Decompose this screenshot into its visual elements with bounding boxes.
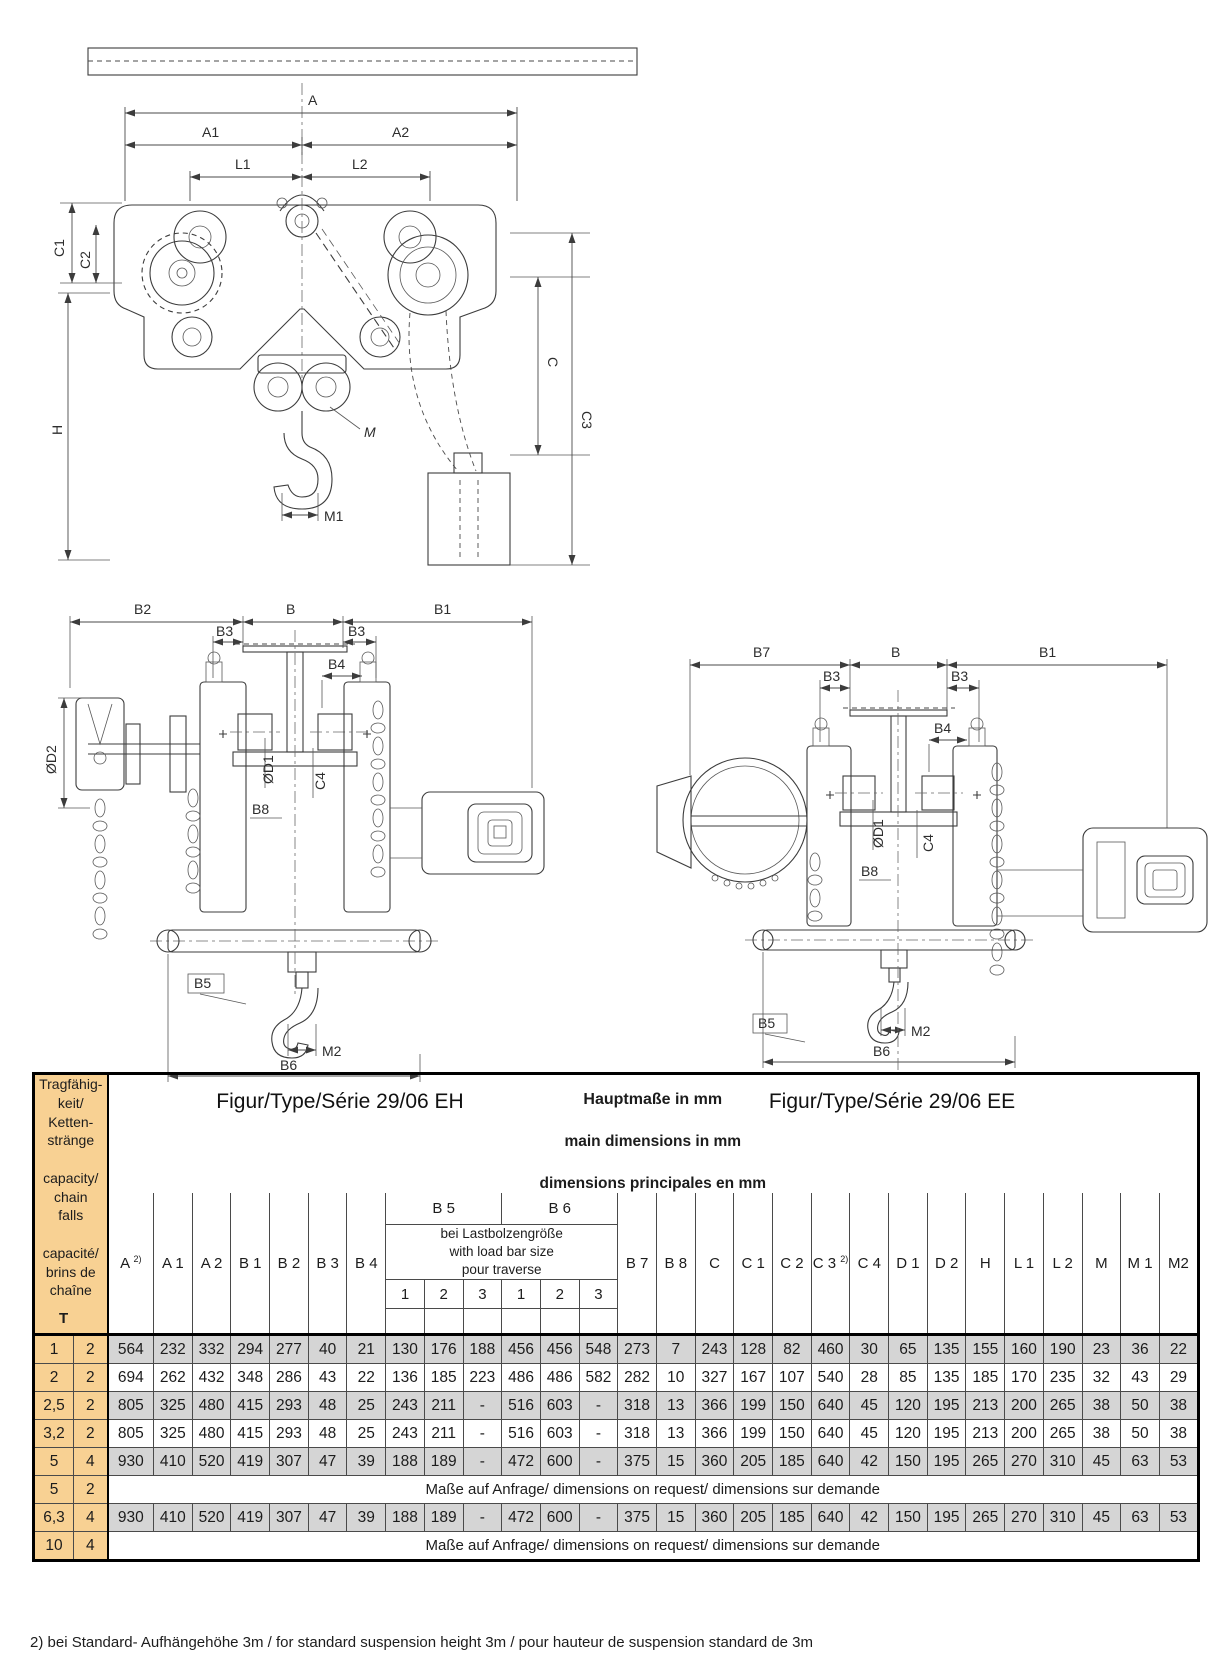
dimension-value-cell: 265 (1043, 1420, 1082, 1448)
dimension-value-cell: 243 (386, 1392, 425, 1420)
hand-chain (93, 799, 107, 939)
dimension-value-cell: 28 (850, 1364, 889, 1392)
dim-label-c4: C4 (312, 772, 328, 790)
dimension-value-cell: 582 (579, 1364, 618, 1392)
dimension-value-cell: 130 (386, 1335, 425, 1364)
capacity-cell: 5 (34, 1448, 74, 1476)
dimension-value-cell: 472 (502, 1448, 541, 1476)
dim-label-a1: A1 (202, 124, 219, 140)
header-spacer-cell (540, 1309, 579, 1335)
column-header: M (1082, 1193, 1121, 1335)
dim-label-b3-right: B3 (951, 668, 968, 684)
dimension-value-cell: 45 (850, 1392, 889, 1420)
dimension-value-cell: 13 (656, 1420, 695, 1448)
dimension-value-cell: 10 (656, 1364, 695, 1392)
dimension-value-cell: 185 (773, 1448, 812, 1476)
dimension-value-cell: 38 (1082, 1420, 1121, 1448)
dimension-value-cell: 640 (811, 1448, 850, 1476)
load-bar-group-description: bei Lastbolzengröße with load bar size p… (386, 1225, 618, 1280)
capacity-cell: 5 (34, 1476, 74, 1504)
dimension-value-cell: 375 (618, 1448, 657, 1476)
column-header: H (966, 1193, 1005, 1335)
load-chain (186, 701, 385, 893)
dimension-value-cell: 29 (1159, 1364, 1198, 1392)
dim-label-b3-left: B3 (823, 668, 840, 684)
column-header: B 2 (270, 1193, 309, 1335)
dim-label-b7: B7 (753, 644, 770, 660)
dimension-value-cell: 65 (889, 1335, 928, 1364)
dimension-value-cell: 45 (1082, 1448, 1121, 1476)
dim-label-c1: C1 (51, 239, 67, 257)
header-spacer-cell (463, 1309, 502, 1335)
dimension-value-cell: 603 (540, 1392, 579, 1420)
dim-label-m1: M1 (324, 508, 344, 524)
dimensions-on-request-cell: Maße auf Anfrage/ dimensions on request/… (108, 1476, 1199, 1504)
dimension-value-cell: 520 (192, 1504, 231, 1532)
dimension-value-cell: - (463, 1392, 502, 1420)
dimension-value-cell: 195 (927, 1392, 966, 1420)
dimension-value-cell: 419 (231, 1504, 270, 1532)
dimension-value-cell: 360 (695, 1448, 734, 1476)
dimension-value-cell: 189 (424, 1504, 463, 1532)
dimension-value-cell: - (463, 1420, 502, 1448)
dimension-value-cell: 307 (270, 1448, 309, 1476)
dimension-value-cell: 265 (1043, 1392, 1082, 1420)
dimension-value-cell: 85 (889, 1364, 928, 1392)
dimension-value-cell: 640 (811, 1504, 850, 1532)
load-bar-size-subcolumn: 1 (386, 1280, 425, 1309)
dim-label-a2: A2 (392, 124, 409, 140)
dimension-value-cell: 120 (889, 1392, 928, 1420)
dimension-value-cell: 43 (1121, 1364, 1160, 1392)
column-header: C (695, 1193, 734, 1335)
header-spacer-cell (579, 1309, 618, 1335)
dimension-value-cell: 325 (154, 1420, 193, 1448)
dimension-value-cell: 155 (966, 1335, 1005, 1364)
dimension-value-cell: 930 (108, 1504, 154, 1532)
table-row: 104Maße auf Anfrage/ dimensions on reque… (34, 1532, 1199, 1561)
dimension-value-cell: 270 (1005, 1504, 1044, 1532)
table-header: Tragfähig- keit/ Ketten- stränge capacit… (34, 1074, 1199, 1335)
dimension-value-cell: 150 (773, 1392, 812, 1420)
dimension-value-cell: 211 (424, 1392, 463, 1420)
dim-label-c2: C2 (77, 251, 93, 269)
dimension-value-cell: 188 (463, 1335, 502, 1364)
table-row: 3,228053254804152934825243211-516603-318… (34, 1420, 1199, 1448)
dimension-value-cell: 486 (502, 1364, 541, 1392)
dim-label-b3-right: B3 (348, 623, 365, 639)
dimension-value-cell: 205 (734, 1504, 773, 1532)
dimension-value-cell: 48 (308, 1420, 347, 1448)
load-bar-size-subcolumn: 1 (502, 1280, 541, 1309)
dimension-value-cell: 21 (347, 1335, 386, 1364)
dim-label-c4: C4 (920, 834, 936, 852)
dimension-value-cell: 199 (734, 1420, 773, 1448)
table-body: 1256423233229427740211301761884564565482… (34, 1335, 1199, 1561)
drawing-trolley-eh: B2 B B1 B3 B3 ØD1 C4 B4 B8 ØD2 (30, 558, 550, 1090)
dim-label-b1: B1 (1039, 644, 1056, 660)
dimension-value-cell: 47 (308, 1504, 347, 1532)
load-bar-size-subcolumn: 3 (463, 1280, 502, 1309)
dim-label-b2: B2 (134, 601, 151, 617)
dimension-value-cell: 480 (192, 1420, 231, 1448)
dimension-value-cell: 150 (889, 1504, 928, 1532)
dimension-value-cell: 170 (1005, 1364, 1044, 1392)
dimension-value-cell: 415 (231, 1392, 270, 1420)
dimension-value-cell: 185 (966, 1364, 1005, 1392)
column-header: A 2) (108, 1193, 154, 1335)
dimension-value-cell: 516 (502, 1420, 541, 1448)
dimension-value-cell: 195 (927, 1420, 966, 1448)
column-header: D 1 (889, 1193, 928, 1335)
column-header: C 4 (850, 1193, 889, 1335)
dimension-value-cell: 472 (502, 1504, 541, 1532)
dimension-value-cell: 243 (695, 1335, 734, 1364)
dimension-value-cell: 38 (1159, 1420, 1198, 1448)
group-header-b5: B 5 (386, 1193, 502, 1225)
dimension-value-cell: - (463, 1504, 502, 1532)
dimension-value-cell: 310 (1043, 1448, 1082, 1476)
chain-falls-cell: 4 (74, 1504, 108, 1532)
capacity-header-cell: Tragfähig- keit/ Ketten- stränge capacit… (34, 1074, 108, 1335)
dimension-value-cell: 30 (850, 1335, 889, 1364)
column-header: L 2 (1043, 1193, 1082, 1335)
dimension-value-cell: 150 (889, 1448, 928, 1476)
column-header: A 2 (192, 1193, 231, 1335)
dimension-value-cell: 47 (308, 1448, 347, 1476)
dimension-value-cell: 199 (734, 1392, 773, 1420)
dimension-value-cell: 42 (850, 1504, 889, 1532)
capacity-header-text: Tragfähig- keit/ Ketten- stränge capacit… (35, 1075, 107, 1300)
dimension-value-cell: 540 (811, 1364, 850, 1392)
dim-label-b: B (286, 601, 295, 617)
dimension-value-cell: 23 (1082, 1335, 1121, 1364)
table-row: 2,528053254804152934825243211-516603-318… (34, 1392, 1199, 1420)
dimension-value-cell: 45 (850, 1420, 889, 1448)
chain-falls-cell: 2 (74, 1392, 108, 1420)
dimension-value-cell: 39 (347, 1448, 386, 1476)
table-row: 1256423233229427740211301761884564565482… (34, 1335, 1199, 1364)
dim-label-a: A (308, 92, 318, 108)
dimension-value-cell: 50 (1121, 1392, 1160, 1420)
dimension-value-cell: - (579, 1420, 618, 1448)
dimension-value-cell: 286 (270, 1364, 309, 1392)
dim-label-b6: B6 (280, 1057, 297, 1073)
dim-label-b6: B6 (873, 1043, 890, 1059)
dimension-value-cell: 63 (1121, 1504, 1160, 1532)
header-spacer-cell (424, 1309, 463, 1335)
dimension-value-cell: 318 (618, 1420, 657, 1448)
dimension-value-cell: 150 (773, 1420, 812, 1448)
dimension-value-cell: 190 (1043, 1335, 1082, 1364)
dimension-value-cell: 348 (231, 1364, 270, 1392)
dimension-value-cell: 40 (308, 1335, 347, 1364)
dimension-value-cell: 160 (1005, 1335, 1044, 1364)
chain-falls-cell: 4 (74, 1532, 108, 1561)
dimension-value-cell: 15 (656, 1504, 695, 1532)
column-header: L 1 (1005, 1193, 1044, 1335)
dimension-value-cell: 211 (424, 1420, 463, 1448)
dimension-value-cell: 694 (108, 1364, 154, 1392)
dimension-value-cell: 50 (1121, 1420, 1160, 1448)
dim-label-b3-left: B3 (216, 623, 233, 639)
dim-label-b4: B4 (934, 720, 951, 736)
table-title-fr: dimensions principales en mm (109, 1175, 1197, 1193)
dimension-value-cell: 243 (386, 1420, 425, 1448)
dimension-value-cell: 603 (540, 1420, 579, 1448)
dimension-value-cell: 486 (540, 1364, 579, 1392)
dimension-value-cell: 235 (1043, 1364, 1082, 1392)
dim-label-b: B (891, 644, 900, 660)
column-header: A 1 (154, 1193, 193, 1335)
dimension-value-cell: 22 (347, 1364, 386, 1392)
dimension-value-cell: 600 (540, 1448, 579, 1476)
dimension-value-cell: 13 (656, 1392, 695, 1420)
dim-label-c: C (545, 357, 561, 367)
column-header: B 3 (308, 1193, 347, 1335)
dimension-value-cell: 460 (811, 1335, 850, 1364)
dimension-value-cell: 294 (231, 1335, 270, 1364)
dimension-value-cell: 640 (811, 1392, 850, 1420)
drawing-trolley-ee: B7 B B1 B3 B3 ØD1 C4 B4 B8 (645, 630, 1215, 1100)
dimension-value-cell: 45 (1082, 1504, 1121, 1532)
dimension-value-cell: 32 (1082, 1364, 1121, 1392)
capacity-cell: 6,3 (34, 1504, 74, 1532)
dim-label-l2: L2 (352, 156, 368, 172)
column-header: C 1 (734, 1193, 773, 1335)
capacity-unit-label: T (35, 1300, 107, 1333)
dimension-value-cell: 39 (347, 1504, 386, 1532)
dimension-value-cell: 293 (270, 1420, 309, 1448)
column-header: D 2 (927, 1193, 966, 1335)
header-spacer-cell (502, 1309, 541, 1335)
dimension-value-cell: 107 (773, 1364, 812, 1392)
dimension-value-cell: 63 (1121, 1448, 1160, 1476)
column-header: B 7 (618, 1193, 657, 1335)
table-row: 549304105204193074739188189-472600-37515… (34, 1448, 1199, 1476)
dimension-value-cell: 120 (889, 1420, 928, 1448)
dim-label-b8: B8 (252, 801, 269, 817)
dimension-value-cell: 205 (734, 1448, 773, 1476)
dimensions-on-request-cell: Maße auf Anfrage/ dimensions on request/… (108, 1532, 1199, 1561)
dimension-value-cell: 223 (463, 1364, 502, 1392)
dim-label-b1: B1 (434, 601, 451, 617)
chain-falls-cell: 2 (74, 1476, 108, 1504)
dimension-value-cell: 262 (154, 1364, 193, 1392)
capacity-cell: 2 (34, 1364, 74, 1392)
dimension-value-cell: 310 (1043, 1504, 1082, 1532)
dimension-value-cell: 185 (424, 1364, 463, 1392)
dim-label-m: M (364, 424, 376, 440)
column-header: C 3 2) (811, 1193, 850, 1335)
dim-label-d1: ØD1 (260, 755, 276, 784)
dimension-value-cell: 548 (579, 1335, 618, 1364)
dim-label-b5: B5 (194, 975, 211, 991)
column-header: M2 (1159, 1193, 1198, 1335)
dimension-value-cell: 318 (618, 1392, 657, 1420)
dimension-value-cell: 195 (927, 1448, 966, 1476)
dimension-value-cell: 270 (1005, 1448, 1044, 1476)
dimension-value-cell: 53 (1159, 1448, 1198, 1476)
dimension-value-cell: 366 (695, 1392, 734, 1420)
dimension-value-cell: 375 (618, 1504, 657, 1532)
load-bar-size-subcolumn: 2 (424, 1280, 463, 1309)
dimension-value-cell: 265 (966, 1448, 1005, 1476)
dimension-value-cell: 38 (1082, 1392, 1121, 1420)
drawing-hoist-front-view: A A1 A2 L1 L2 C1 C2 H C C3 M M1 (30, 25, 650, 570)
dimension-value-cell: 25 (347, 1392, 386, 1420)
dim-label-b5: B5 (758, 1015, 775, 1031)
dimension-value-cell: 135 (927, 1335, 966, 1364)
dimension-value-cell: 327 (695, 1364, 734, 1392)
dim-label-d1: ØD1 (870, 819, 886, 848)
table-row: 2269426243234828643221361852234864865822… (34, 1364, 1199, 1392)
dimension-value-cell: 200 (1005, 1392, 1044, 1420)
chain-falls-cell: 4 (74, 1448, 108, 1476)
load-bar-size-subcolumn: 2 (540, 1280, 579, 1309)
dimension-value-cell: 195 (927, 1504, 966, 1532)
dimension-value-cell: 189 (424, 1448, 463, 1476)
dim-label-h: H (49, 425, 65, 435)
group-header-b6: B 6 (502, 1193, 618, 1225)
capacity-cell: 1 (34, 1335, 74, 1364)
dimension-value-cell: 167 (734, 1364, 773, 1392)
dimension-value-cell: 332 (192, 1335, 231, 1364)
dimension-value-cell: 410 (154, 1448, 193, 1476)
dimension-value-cell: 7 (656, 1335, 695, 1364)
dimension-value-cell: 36 (1121, 1335, 1160, 1364)
dimension-value-cell: 185 (773, 1504, 812, 1532)
table-title-cell: Hauptmaße in mm main dimensions in mm di… (108, 1074, 1199, 1194)
capacity-cell: 3,2 (34, 1420, 74, 1448)
dimension-value-cell: 188 (386, 1504, 425, 1532)
chain-falls-cell: 2 (74, 1420, 108, 1448)
footnote: 2) bei Standard- Aufhängehöhe 3m / for s… (30, 1634, 813, 1651)
load-bar-size-subcolumn: 3 (579, 1280, 618, 1309)
dimension-value-cell: 366 (695, 1420, 734, 1448)
dimension-value-cell: 325 (154, 1392, 193, 1420)
table-row: 6,349304105204193074739188189-472600-375… (34, 1504, 1199, 1532)
dimension-table: Tragfähig- keit/ Ketten- stränge capacit… (32, 1072, 1200, 1562)
dimension-value-cell: 415 (231, 1420, 270, 1448)
dimension-value-cell: 277 (270, 1335, 309, 1364)
dimension-value-cell: 516 (502, 1392, 541, 1420)
column-header: B 8 (656, 1193, 695, 1335)
capacity-cell: 2,5 (34, 1392, 74, 1420)
dimension-value-cell: - (579, 1504, 618, 1532)
dimension-value-cell: 38 (1159, 1392, 1198, 1420)
dimension-value-cell: 293 (270, 1392, 309, 1420)
dimension-value-cell: - (579, 1448, 618, 1476)
dimension-value-cell: 42 (850, 1448, 889, 1476)
dimension-value-cell: 188 (386, 1448, 425, 1476)
dimension-value-cell: - (463, 1448, 502, 1476)
dimension-value-cell: 25 (347, 1420, 386, 1448)
table-title-de: Hauptmaße in mm (109, 1091, 1197, 1109)
dimension-value-cell: 930 (108, 1448, 154, 1476)
dimension-value-cell: 520 (192, 1448, 231, 1476)
dim-label-l1: L1 (235, 156, 251, 172)
dimension-value-cell: 360 (695, 1504, 734, 1532)
dimension-value-cell: 480 (192, 1392, 231, 1420)
table-row: 52Maße auf Anfrage/ dimensions on reques… (34, 1476, 1199, 1504)
table-title-en: main dimensions in mm (109, 1133, 1197, 1151)
dimension-value-cell: 419 (231, 1448, 270, 1476)
dim-label-d2: ØD2 (43, 745, 59, 774)
dimension-value-cell: 805 (108, 1420, 154, 1448)
dimension-value-cell: 410 (154, 1504, 193, 1532)
capacity-cell: 10 (34, 1532, 74, 1561)
dimension-value-cell: 600 (540, 1504, 579, 1532)
dimension-value-cell: 176 (424, 1335, 463, 1364)
column-header: C 2 (773, 1193, 812, 1335)
dimension-value-cell: 53 (1159, 1504, 1198, 1532)
dimension-value-cell: 456 (540, 1335, 579, 1364)
dimension-value-cell: 432 (192, 1364, 231, 1392)
dimension-value-cell: 213 (966, 1420, 1005, 1448)
dimension-value-cell: 48 (308, 1392, 347, 1420)
column-header: B 1 (231, 1193, 270, 1335)
dimension-value-cell: 15 (656, 1448, 695, 1476)
dim-label-b8: B8 (861, 863, 878, 879)
dimension-value-cell: 282 (618, 1364, 657, 1392)
column-header: M 1 (1121, 1193, 1160, 1335)
dimension-value-cell: 805 (108, 1392, 154, 1420)
dimension-value-cell: 273 (618, 1335, 657, 1364)
dimension-value-cell: 136 (386, 1364, 425, 1392)
dimension-value-cell: 564 (108, 1335, 154, 1364)
dim-label-b4: B4 (328, 656, 345, 672)
dimension-value-cell: 456 (502, 1335, 541, 1364)
header-spacer-cell (386, 1309, 425, 1335)
dimension-value-cell: 128 (734, 1335, 773, 1364)
dimension-value-cell: 43 (308, 1364, 347, 1392)
dimension-value-cell: 307 (270, 1504, 309, 1532)
dimension-value-cell: 82 (773, 1335, 812, 1364)
dimension-value-cell: 135 (927, 1364, 966, 1392)
dim-label-m2: M2 (322, 1043, 342, 1059)
dimension-value-cell: 213 (966, 1392, 1005, 1420)
column-header: B 4 (347, 1193, 386, 1335)
dim-label-c3: C3 (579, 411, 595, 429)
dim-label-m2: M2 (911, 1023, 931, 1039)
dimension-value-cell: 232 (154, 1335, 193, 1364)
dimension-value-cell: 200 (1005, 1420, 1044, 1448)
dimension-value-cell: 22 (1159, 1335, 1198, 1364)
dimension-value-cell: 640 (811, 1420, 850, 1448)
dimension-value-cell: - (579, 1392, 618, 1420)
chain-falls-cell: 2 (74, 1335, 108, 1364)
chain-falls-cell: 2 (74, 1364, 108, 1392)
dimension-value-cell: 265 (966, 1504, 1005, 1532)
